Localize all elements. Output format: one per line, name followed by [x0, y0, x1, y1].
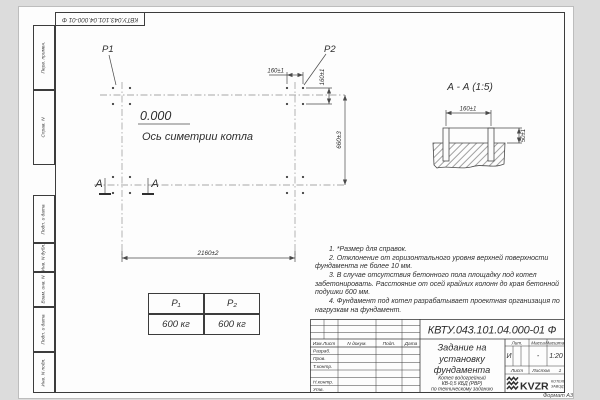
margin-stamp-sprav-n: Справ. N — [33, 90, 55, 165]
margin-stamp-label: Подп. и дата — [42, 314, 47, 344]
role-utv: Утв. — [313, 387, 324, 393]
load-table-header-p1: Р₁ — [148, 293, 204, 314]
dim-bolt-spacing-x: 160±1 — [267, 69, 284, 75]
dim-plan-width: 2160±2 — [197, 250, 219, 257]
margin-stamp-label: Взам. инв. N — [42, 276, 47, 304]
sheet-label: Лист — [510, 368, 523, 374]
kvzr-logo-caption-line1: КОТЕЛЬНЫЙ — [551, 380, 565, 384]
load-table-value-p2: 600 кг — [204, 314, 260, 335]
note-3: 3. В случае отсутствия бетонного пола пл… — [315, 272, 571, 298]
kvzr-logo-icon — [507, 377, 518, 389]
section-mark-letter-right: А — [150, 178, 158, 190]
role-razrab: Разраб. — [313, 349, 330, 355]
change-header-podp: Подп. — [383, 341, 396, 347]
title-block-doc-number: КВТУ.043.101.04.000-01 Ф — [428, 325, 557, 337]
section-a-a-view: А - А (1:5) 160±1 50±1 — [423, 73, 548, 188]
margin-stamp-perv-primen: Перв. примен. — [33, 25, 55, 90]
load-table-header-row: Р₁ Р₂ — [148, 293, 260, 314]
change-header-izm-list: Изм.Лист — [313, 341, 336, 347]
note-2: 2. Отклонение от горизонтального уровня … — [315, 255, 571, 272]
load-p2-label: Р2 — [324, 44, 336, 55]
note-4: 4. Фундамент под котел разрабатывает про… — [315, 298, 571, 315]
drawing-subtitle-line3: по техническому заданию — [431, 387, 493, 393]
change-header-data: Дата — [404, 341, 418, 347]
load-table-header-p2: Р₂ — [204, 293, 260, 314]
load-table-value-p1: 600 кг — [148, 314, 204, 335]
sheets-value: 1 — [559, 368, 562, 374]
mass-label: Масса — [531, 340, 545, 345]
margin-stamp-label: Перв. примен. — [42, 42, 47, 74]
mass-value: - — [537, 353, 540, 360]
title-block: Изм.Лист N докум. Подп. Дата Разраб. Про… — [310, 319, 565, 393]
technical-notes: 1. *Размер для справок. 2. Отклонение от… — [315, 246, 571, 315]
load-table-value-row: 600 кг 600 кг — [148, 314, 260, 335]
margin-stamp-label: Подп. и дата — [42, 204, 47, 234]
scale-value: 1:20 — [549, 353, 563, 360]
section-mark-letter-left: А — [94, 178, 102, 190]
margin-stamp-podp-data-1: Подп. и дата — [33, 195, 55, 243]
role-prov: Пров. — [313, 356, 326, 362]
lit-value: И — [506, 353, 512, 360]
anchor-bolt-group-top-left — [112, 87, 131, 105]
foundation-plan-view: Р1 Р2 0.000 Ось симетрии котла А А 160±1… — [58, 22, 363, 267]
load-table: Р₁ Р₂ 600 кг 600 кг — [148, 293, 260, 335]
margin-stamp-vzam-inv: Взам. инв. N — [33, 272, 55, 307]
margin-stamp-label: Инв. N подл. — [42, 358, 47, 386]
sheets-label: Листов — [531, 368, 550, 374]
margin-stamp-inv-podl: Инв. N подл. — [33, 352, 55, 393]
drawing-title-line1: Задание на — [438, 343, 487, 353]
anchor-bolt-right — [488, 128, 494, 161]
kvzr-logo-text: KVZR — [520, 381, 549, 393]
margin-stamp-label: Инв. N дубл. — [42, 244, 47, 272]
dim-section-bolt-height: 50±1 — [521, 129, 527, 142]
margin-stamp-label: Справ. N — [42, 117, 47, 137]
dim-plan-height: 660±3 — [336, 131, 343, 149]
p1-leader-line — [109, 55, 116, 85]
change-header-n-dokum: N докум. — [347, 341, 366, 347]
margin-stamp-inv-dubl: Инв. N дубл. — [33, 243, 55, 272]
scale-label: Масштаб — [545, 340, 565, 345]
kvzr-logo-caption-line2: ЗАВОД РЭП — [551, 385, 565, 389]
note-1: 1. *Размер для справок. — [315, 246, 571, 255]
role-t-kontr: Т.контр. — [313, 364, 332, 370]
section-view-title: А - А (1:5) — [446, 82, 493, 93]
boiler-axis-label: Ось симетрии котла — [142, 131, 253, 143]
drawing-title-line3: фундамента — [434, 365, 490, 375]
role-n-kontr: Н.контр. — [313, 379, 333, 385]
lit-label: Лит. — [511, 340, 523, 345]
elevation-mark: 0.000 — [140, 109, 171, 123]
format-label: Формат А3 — [518, 393, 598, 399]
anchor-bolt-left — [443, 128, 449, 161]
dim-bolt-spacing-y: 160±1 — [320, 69, 326, 86]
drawing-title-line2: установку — [438, 354, 486, 364]
margin-stamp-podp-data-2: Подп. и дата — [33, 307, 55, 352]
load-p1-label: Р1 — [102, 44, 114, 55]
dim-section-bolt-spacing: 160±1 — [460, 107, 477, 113]
